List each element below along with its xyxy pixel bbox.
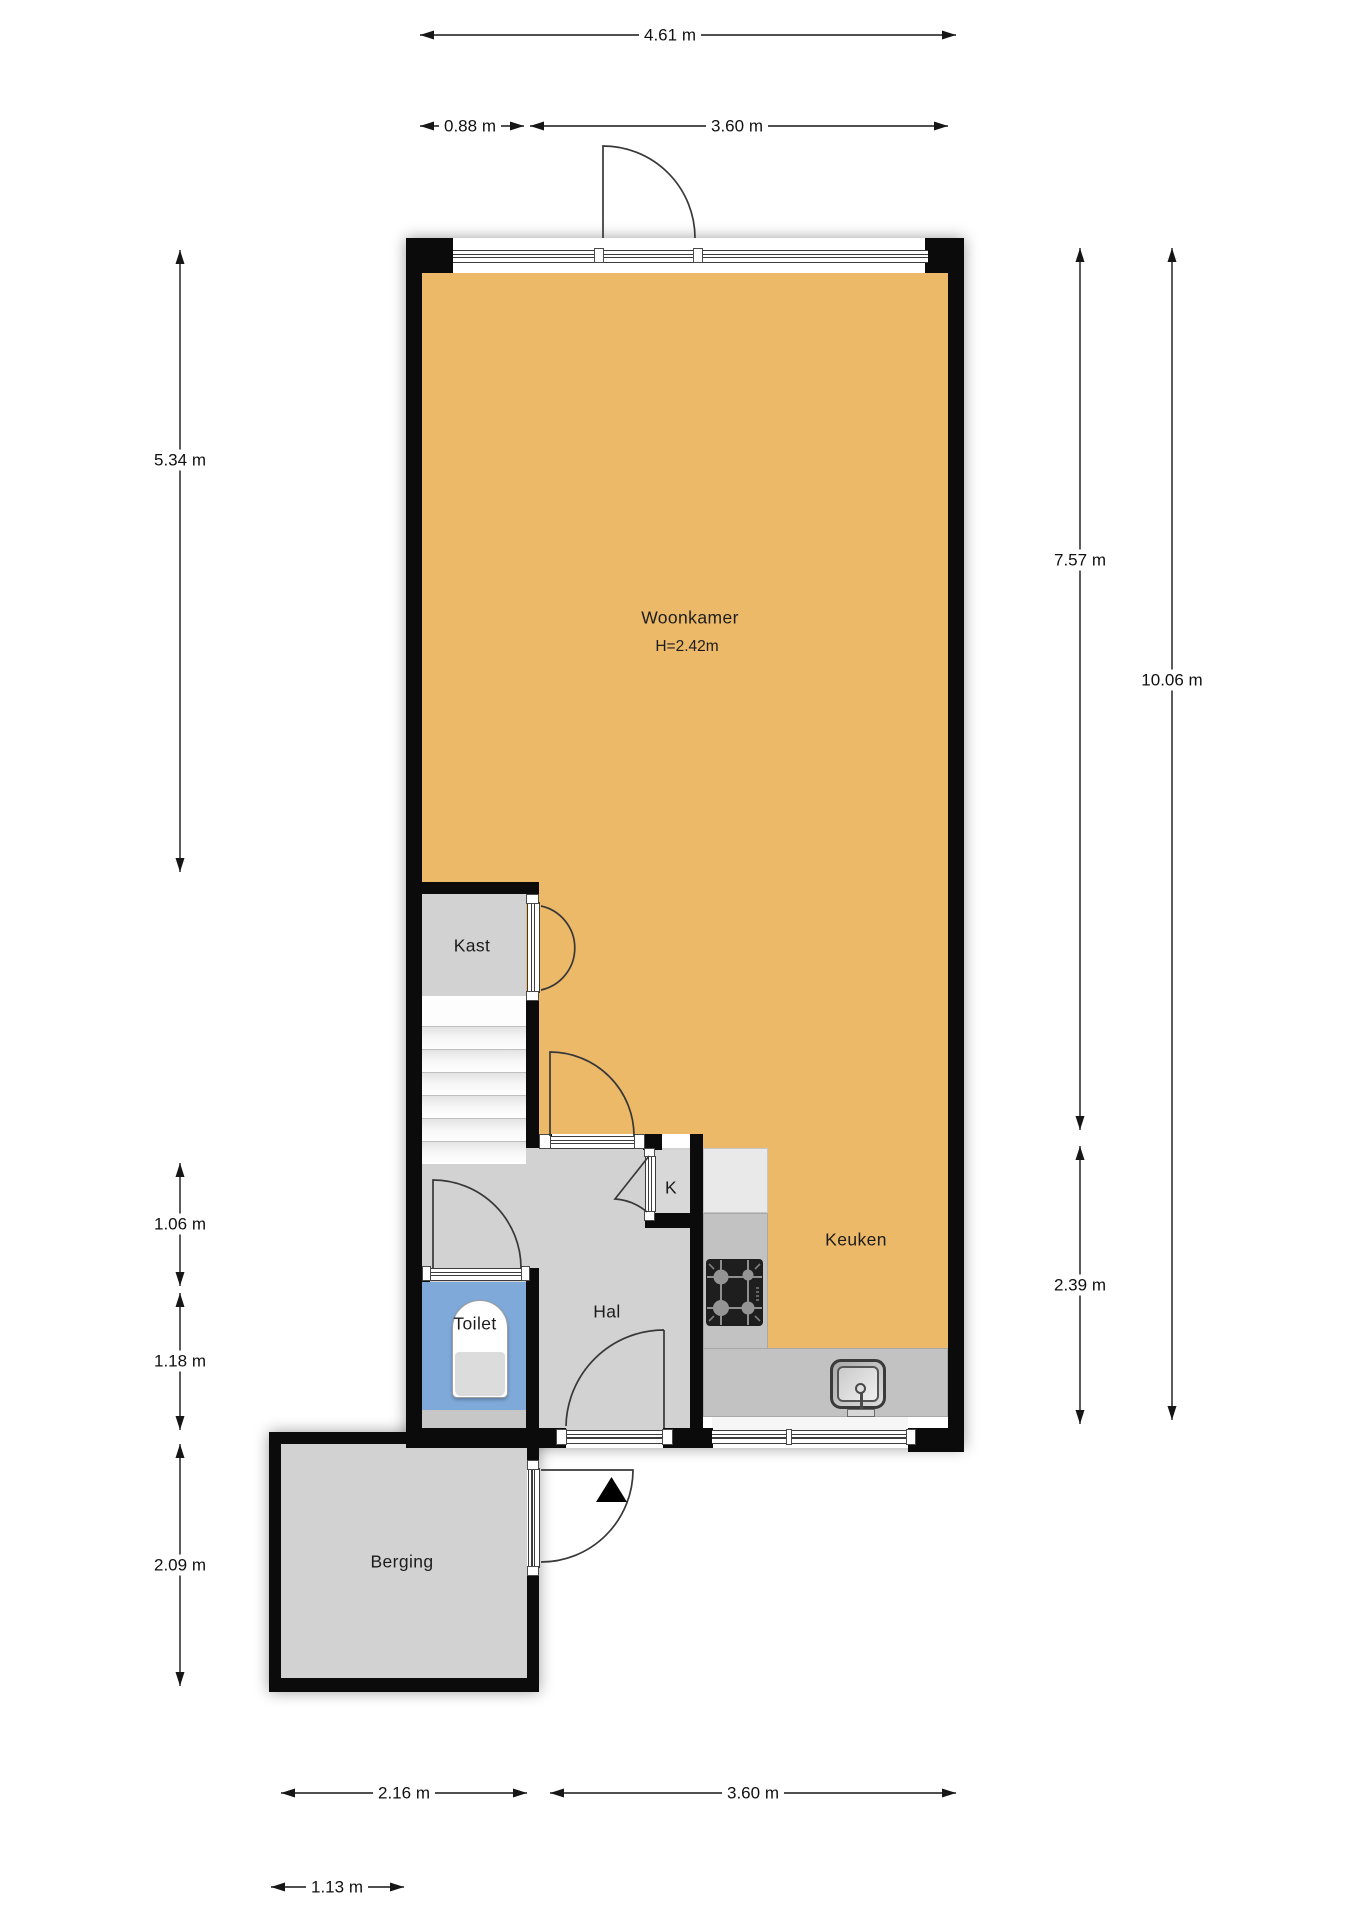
door-jamb xyxy=(526,991,539,1001)
dim-right-total-label: 10.06 m xyxy=(1136,670,1207,691)
kast-door-frame xyxy=(527,902,540,993)
toilet-label: Toilet xyxy=(453,1314,496,1335)
window-jamb xyxy=(693,248,703,263)
door-jamb xyxy=(521,1266,530,1281)
door-jamb xyxy=(526,894,539,904)
door-jamb xyxy=(422,1266,431,1281)
keuken-label: Keuken xyxy=(825,1230,887,1251)
wall-berging-top xyxy=(269,1432,539,1444)
staircase xyxy=(422,996,526,1163)
dim-bottom-berging-label: 2.16 m xyxy=(373,1783,435,1804)
entrance-arrow-icon xyxy=(596,1477,627,1502)
door-swing-berging xyxy=(541,1470,633,1562)
wall-right xyxy=(948,238,964,1447)
toilet-shelf xyxy=(422,1410,526,1430)
window-jamb xyxy=(594,248,604,263)
stair-tread xyxy=(422,1026,526,1050)
faucet-base xyxy=(847,1409,875,1417)
window-top-facade xyxy=(453,250,928,263)
kitchen-counter-bottom xyxy=(703,1348,948,1417)
wall-stairs-right xyxy=(526,991,539,1148)
window-jamb xyxy=(786,1429,792,1445)
floor-plan-canvas: Woonkamer H=2.42m Kast Hal Toilet K Keuk… xyxy=(0,0,1358,1920)
toilet-door-frame xyxy=(430,1268,522,1281)
dim-bottom-offset-label: 1.13 m xyxy=(306,1877,368,1898)
stair-tread xyxy=(422,1118,526,1142)
stair-tread xyxy=(422,1095,526,1119)
kitchen-floor-strip xyxy=(712,1417,908,1430)
window-jamb xyxy=(906,1429,916,1445)
door-jamb xyxy=(539,1134,551,1149)
berging-label: Berging xyxy=(370,1552,433,1573)
door-swing-top xyxy=(603,146,695,238)
dim-bottom-kitchen-label: 3.60 m xyxy=(722,1783,784,1804)
stair-tread xyxy=(422,1049,526,1073)
dim-top-right-segment-label: 3.60 m xyxy=(706,116,768,137)
wall-berging-left xyxy=(269,1432,281,1692)
dim-left-lower-label: 2.09 m xyxy=(149,1555,211,1576)
door-jamb xyxy=(634,1134,645,1149)
door-jamb xyxy=(556,1429,567,1445)
woonkamer-label: Woonkamer xyxy=(641,608,739,629)
stair-tread xyxy=(422,1072,526,1096)
woonkamer-ceiling-height: H=2.42m xyxy=(655,638,718,656)
dim-left-middle2-label: 1.18 m xyxy=(149,1351,211,1372)
door-jamb xyxy=(644,1148,655,1157)
dim-right-kitchen-label: 2.39 m xyxy=(1049,1275,1111,1296)
wall-toilet-right xyxy=(526,1268,539,1430)
door-jamb xyxy=(662,1429,673,1445)
dim-left-middle1-label: 1.06 m xyxy=(149,1214,211,1235)
wall-kast-top xyxy=(406,882,539,894)
stair-tread xyxy=(422,1141,526,1164)
wall-keuken-hal xyxy=(690,1134,703,1428)
wall-bottom-right xyxy=(908,1428,964,1452)
k-closet-label: K xyxy=(665,1178,677,1199)
berging-door-frame xyxy=(528,1468,540,1568)
wall-corner-top-left xyxy=(406,238,453,273)
door-jamb xyxy=(527,1566,539,1576)
hal-label: Hal xyxy=(593,1302,620,1323)
hal-door-frame xyxy=(550,1136,635,1149)
dim-top-left-segment-label: 0.88 m xyxy=(439,116,501,137)
wall-corner-top-right xyxy=(925,238,964,273)
window-kitchen xyxy=(712,1430,908,1444)
dim-left-upper-label: 5.34 m xyxy=(149,450,211,471)
door-jamb xyxy=(527,1460,539,1470)
kast-label: Kast xyxy=(454,936,491,957)
wall-berging-bottom xyxy=(269,1678,539,1692)
k-door-frame xyxy=(645,1156,656,1212)
wall-berging-right-lower xyxy=(527,1568,539,1678)
kitchen-cabinet xyxy=(703,1148,768,1213)
dim-right-living-label: 7.57 m xyxy=(1049,550,1111,571)
wall-left xyxy=(406,238,422,1447)
front-door-frame xyxy=(566,1430,663,1444)
door-jamb xyxy=(644,1211,655,1221)
kitchen-sink xyxy=(830,1359,886,1409)
dim-top-total-label: 4.61 m xyxy=(639,25,701,46)
toilet-seat xyxy=(455,1352,505,1396)
